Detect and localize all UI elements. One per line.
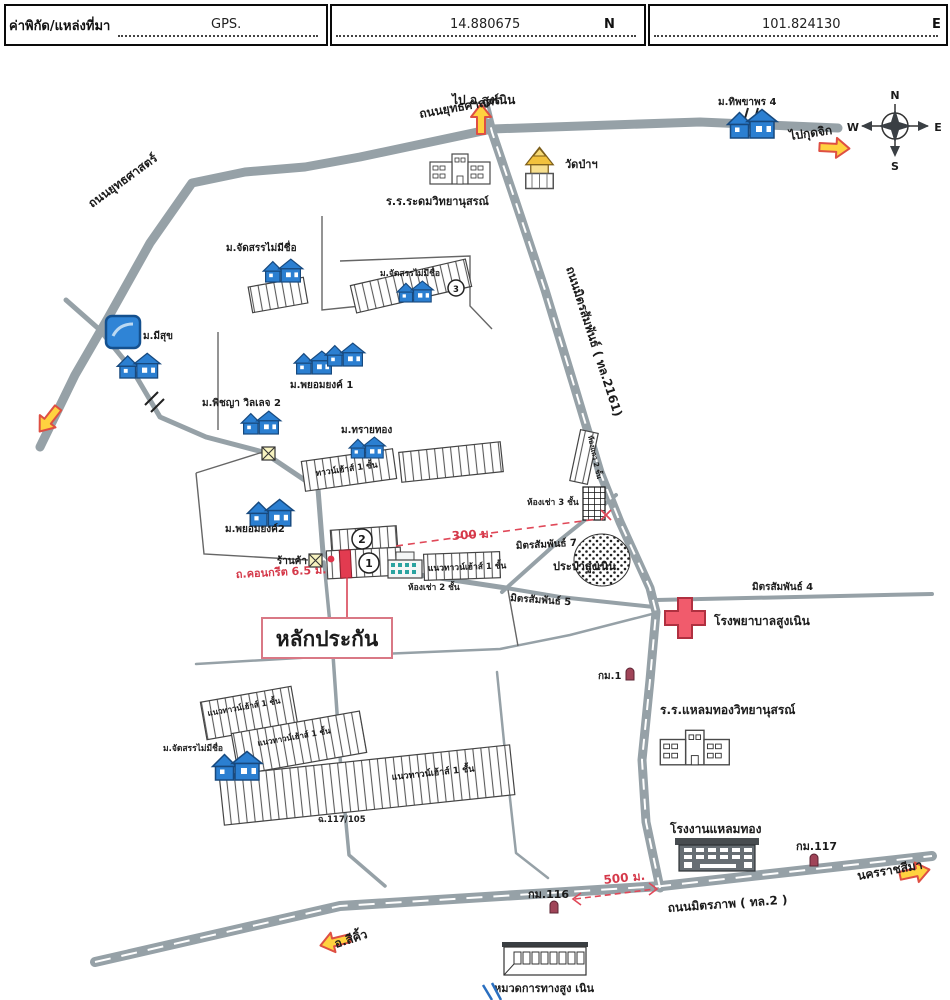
deed-number-label: ฉ.117/105 bbox=[318, 815, 366, 825]
compass-w-label: W bbox=[847, 121, 859, 134]
phayomyong1-houses-icon bbox=[325, 343, 365, 366]
compass-n-label: N bbox=[890, 89, 899, 102]
rental-3f-building bbox=[583, 487, 605, 520]
factory-icon bbox=[675, 838, 759, 871]
km116-post-icon bbox=[550, 901, 558, 913]
marker-2: 2 bbox=[358, 533, 366, 546]
mittraphap-road-label: ถนนมิตรภาพ ( ทล.2 ) bbox=[667, 893, 788, 915]
distance-300m-label: 300 ม. bbox=[451, 526, 494, 543]
hospital-label: โรงพยาบาลสูงเนิน bbox=[713, 613, 811, 629]
km117-label: กม.117 bbox=[796, 840, 837, 853]
map-labels: ไป อ.สูงเนิน ถนนยุทธศาสตร์ ถนนยุทธศาสตร์… bbox=[86, 92, 924, 996]
km1-label: กม.1 bbox=[598, 671, 621, 682]
longitude-direction: E bbox=[932, 17, 941, 32]
sikhio-label: อ.สีคิ้ว bbox=[332, 924, 370, 951]
subject-plot bbox=[339, 550, 351, 618]
laemthong-factory-label: โรงงานแหลมทอง bbox=[669, 821, 762, 836]
temple-icon bbox=[526, 147, 554, 188]
arrow-east-kutchik bbox=[819, 137, 850, 159]
highway-office-label: หมวดการทางสูง เนิน bbox=[494, 982, 595, 996]
header-cell-longitude: 101.824130 E bbox=[648, 4, 948, 46]
coord-source-label: ค่าพิกัด/แหล่งที่มา bbox=[9, 15, 110, 36]
misuk-label: ม.มีสุข bbox=[143, 330, 173, 342]
km117-post-icon bbox=[810, 854, 818, 866]
dotted-rule bbox=[118, 35, 318, 37]
marker-3: 3 bbox=[453, 285, 459, 295]
saithong-houses-icon bbox=[349, 437, 385, 458]
waterworks-label: ประปาสูงเนิน bbox=[553, 560, 616, 574]
unnamed-estate-south-label: ม.จัดสรรไม่มีชื่อ bbox=[163, 741, 223, 754]
header-cell-title: ค่าพิกัด/แหล่งที่มา GPS. bbox=[4, 4, 328, 46]
shop-icon bbox=[262, 447, 275, 460]
collateral-label: หลักประกัน bbox=[276, 627, 379, 651]
thipphawan-houses-icon bbox=[728, 110, 778, 139]
thipphawan4-label: ม.ทิพขาพร 4 bbox=[718, 96, 776, 108]
mitsamphan5-label: มิตรสัมพันธ์ 5 bbox=[510, 592, 572, 608]
rental-3f-label: ห้องเช่า 3 ชั้น bbox=[527, 495, 579, 508]
wat-pa-label: วัดป่าฯ bbox=[565, 158, 598, 171]
saithong-label: ม.ทรายทอง bbox=[341, 425, 392, 436]
phichaya2-label: ม.พิชญา วิลเลจ 2 bbox=[202, 397, 281, 409]
header-cell-latitude: 14.880675 N bbox=[330, 4, 646, 46]
phayomyong2-label: ม.พยอมยงค์2 bbox=[225, 523, 285, 535]
gps-label: GPS. bbox=[211, 17, 241, 32]
compass-e-label: E bbox=[934, 121, 942, 134]
dotted-rule bbox=[336, 35, 636, 37]
unnamed-estate-north-label: ม.จัดสรรไม่มีชื่อ bbox=[226, 240, 297, 254]
phayomyong1-label: ม.พยอมยงค์ 1 bbox=[290, 379, 353, 391]
mitsamphan7-label: มิตรสัมพันธ์ 7 bbox=[516, 537, 578, 552]
street-mitsamphan4 bbox=[656, 594, 932, 600]
phayomyong2-houses-icon bbox=[247, 499, 293, 526]
laemthong-school-icon bbox=[660, 730, 729, 765]
unnamed-estate-north-houses-icon bbox=[263, 259, 303, 282]
yutthasat-road-label-west: ถนนยุทธศาสตร์ bbox=[86, 151, 161, 212]
collateral-callout: หลักประกัน bbox=[262, 618, 392, 658]
radom-school-icon bbox=[430, 154, 490, 184]
laemthong-school-label: ร.ร.แหลมทองวิทยานุสรณ์ bbox=[660, 703, 795, 718]
hospital-cross-icon bbox=[665, 598, 705, 638]
highway-office-building bbox=[502, 942, 588, 975]
latitude-value: 14.880675 bbox=[450, 17, 520, 32]
road-width-note: ถ.คอนกรีต 6.5 ม. bbox=[235, 563, 326, 581]
compass-s-label: S bbox=[891, 160, 899, 173]
compass-rose: N W E S bbox=[847, 89, 942, 173]
location-map: 2 1 3 bbox=[0, 55, 950, 1000]
km116-label: กม.116 bbox=[528, 888, 569, 901]
latitude-direction: N bbox=[604, 17, 615, 32]
mitsamphan4-label: มิตรสัมพันธ์ 4 bbox=[752, 581, 813, 593]
longitude-value: 101.824130 bbox=[762, 17, 841, 32]
pool-icon bbox=[106, 316, 140, 348]
km1-post-icon bbox=[626, 668, 634, 680]
phichaya-houses-icon bbox=[241, 411, 281, 434]
dotted-rule bbox=[654, 35, 938, 37]
marker-1: 1 bbox=[365, 557, 373, 570]
radom-school-label: ร.ร.ระดมวิทยานุสรณ์ bbox=[386, 195, 490, 209]
